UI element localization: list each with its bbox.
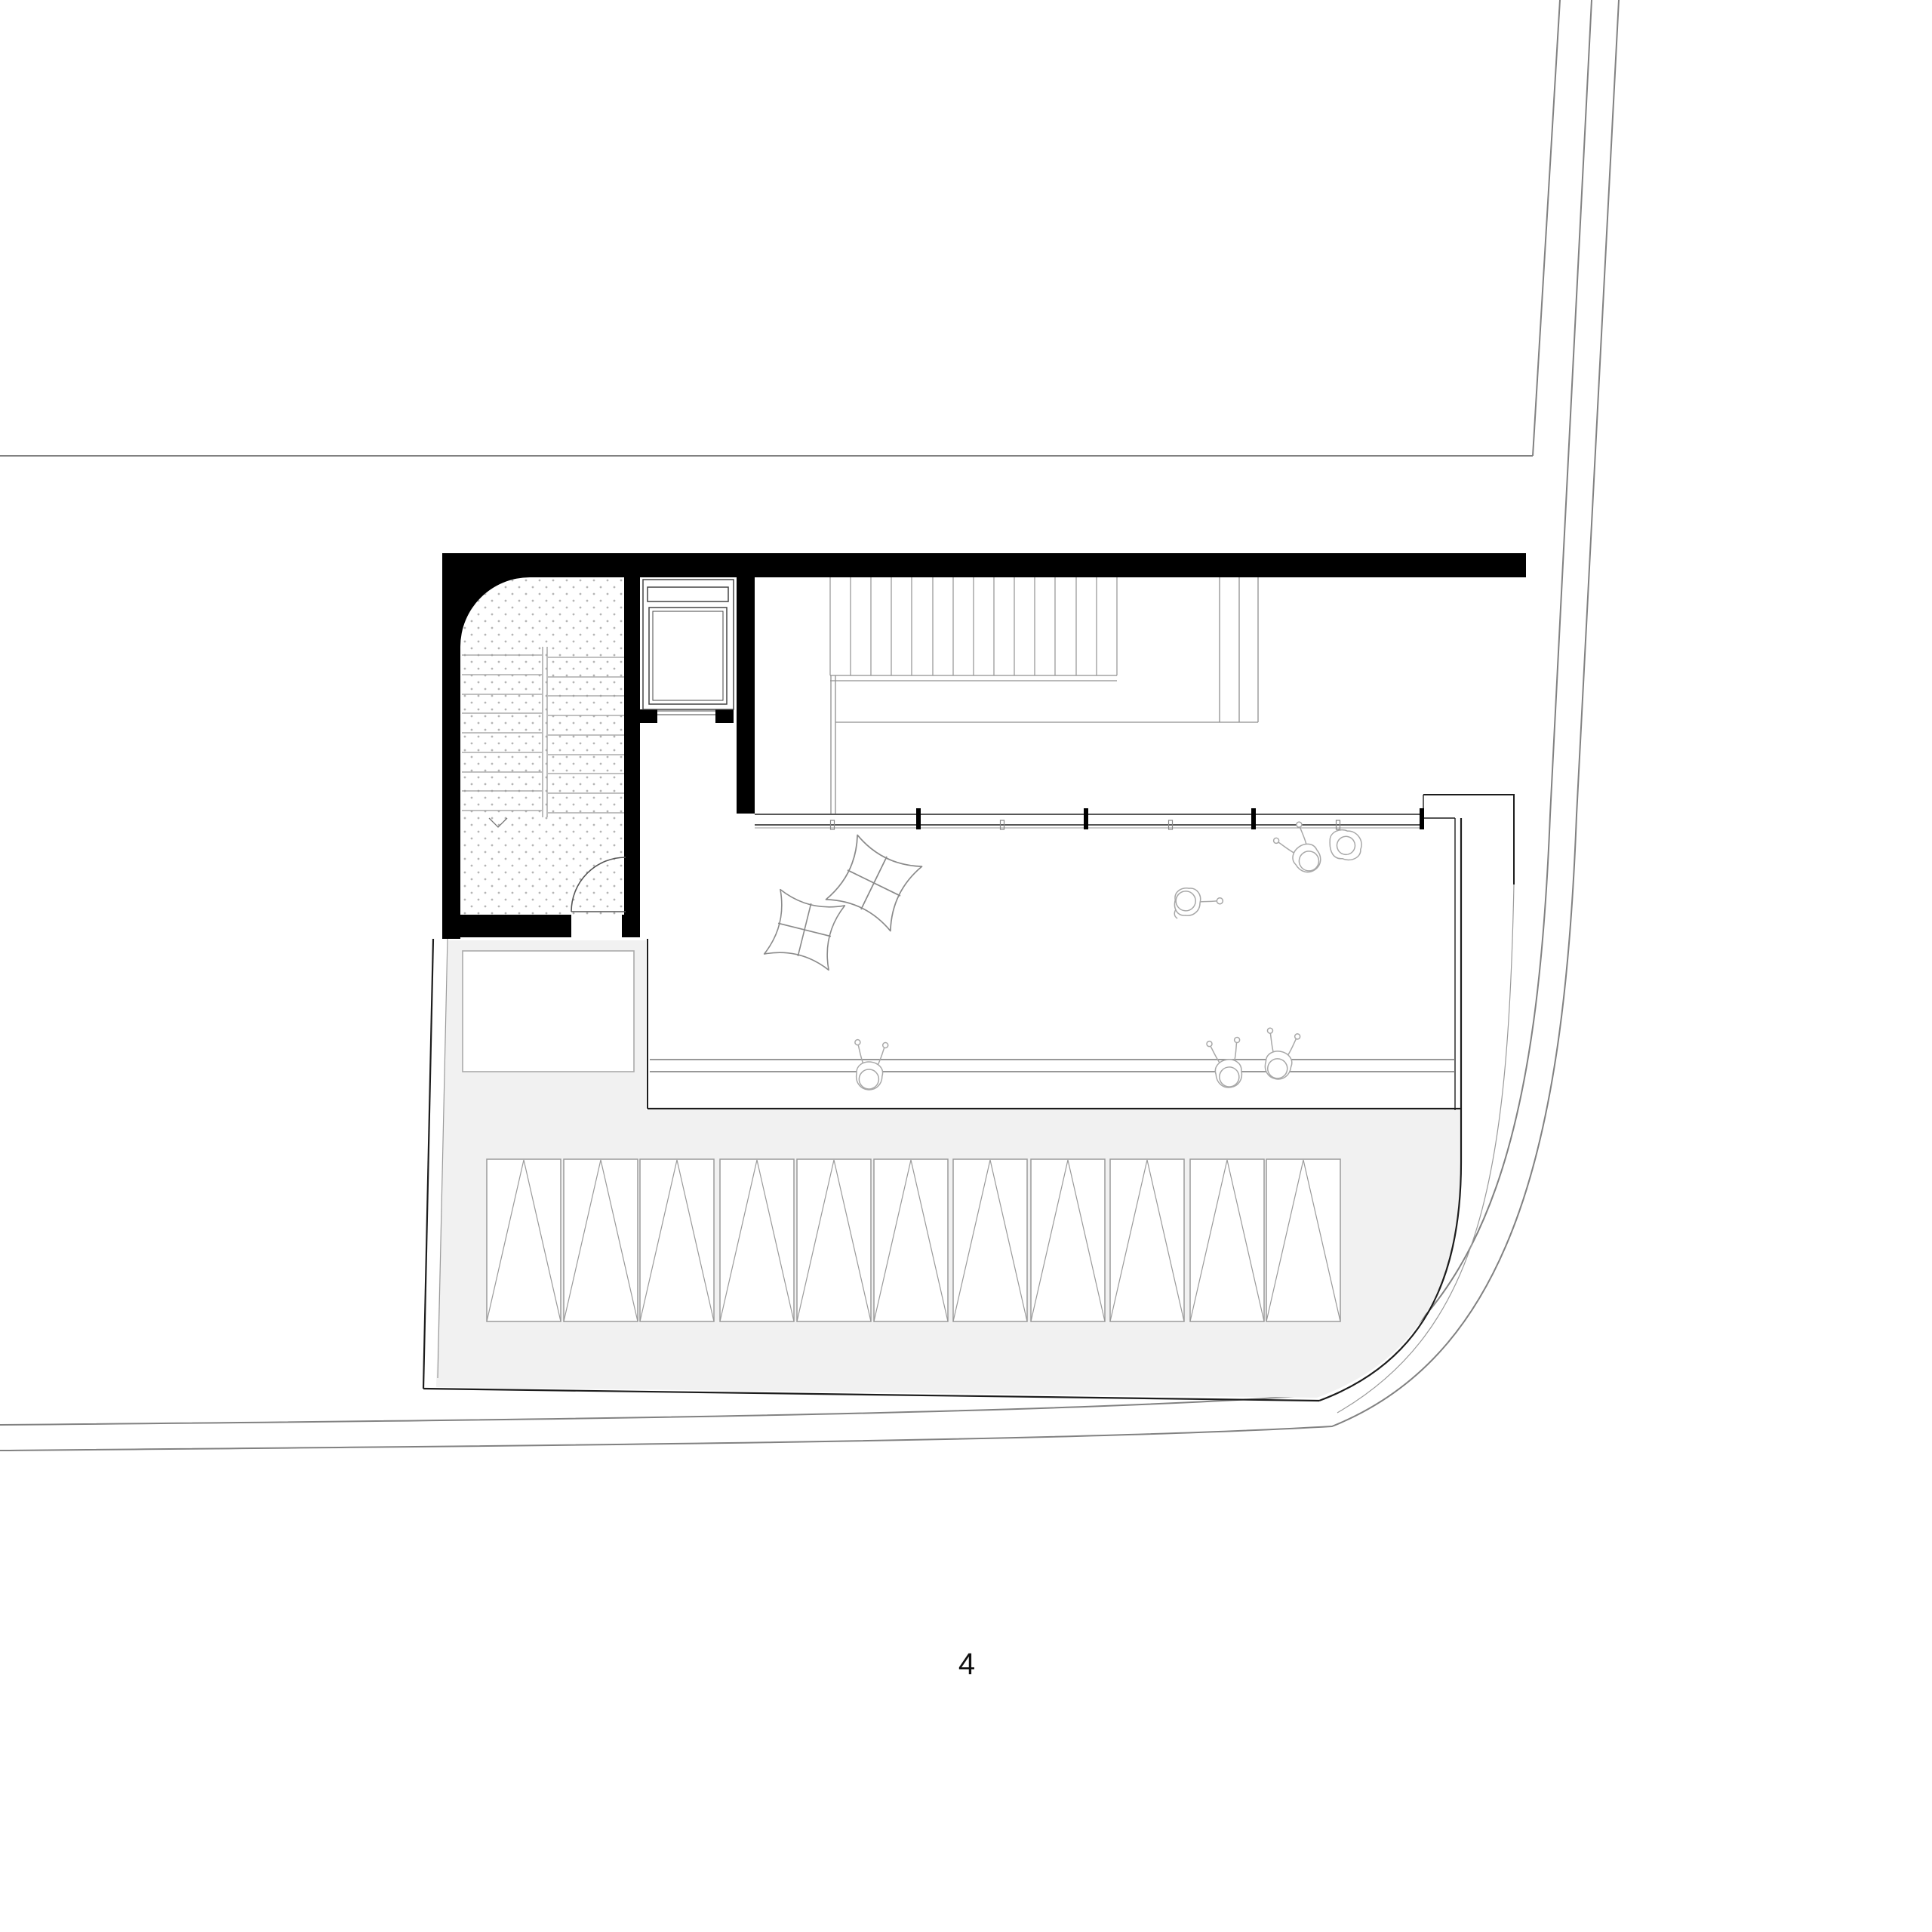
- canopy-bay: [1110, 1159, 1184, 1321]
- planter: [463, 951, 634, 1072]
- wall-left: [442, 553, 460, 939]
- elevator-door: [657, 711, 715, 715]
- canopy-bay: [487, 1159, 561, 1321]
- canopy-bay: [874, 1159, 948, 1321]
- butterfly-chair: [764, 890, 845, 971]
- parcel-corner-line: [1533, 0, 1560, 456]
- wall-bottom: [442, 915, 571, 937]
- upper-stair-edges: [830, 577, 1258, 814]
- canopy-bay: [720, 1159, 794, 1321]
- railing-post: [916, 808, 921, 829]
- wall-stair-room-right: [624, 577, 640, 915]
- wall-top: [442, 553, 1526, 577]
- wall-interior: [737, 577, 755, 814]
- ground-left-edge-outer: [423, 939, 433, 1389]
- floor-number-label: 4: [958, 1647, 975, 1681]
- canopy-bay: [797, 1159, 871, 1321]
- railing-posts: [916, 808, 1424, 829]
- terrace-railing: [755, 808, 1424, 829]
- elevator-jamb-left: [640, 709, 657, 723]
- floor-plan-drawing: 4: [0, 0, 1932, 1932]
- canopy-bay: [564, 1159, 638, 1321]
- elevator-counterweight: [648, 587, 728, 601]
- floor-plan-sheet: 4: [0, 0, 1932, 1932]
- terrace-top-right-notch: [1423, 795, 1514, 884]
- butterfly-chairs: [764, 835, 922, 970]
- stair-left-stringer: [831, 675, 835, 814]
- railing-post: [1084, 808, 1088, 829]
- elevator-cab-inner: [653, 611, 723, 700]
- canopy-bay: [1031, 1159, 1105, 1321]
- canopy-bay: [953, 1159, 1027, 1321]
- railing-post: [1251, 808, 1256, 829]
- canopy-bay: [1190, 1159, 1264, 1321]
- person-figure: [1258, 1028, 1300, 1082]
- person-figure: [1174, 887, 1224, 922]
- canopy-bay: [1266, 1159, 1340, 1321]
- person-figure: [851, 1039, 889, 1091]
- elevator-jamb-right: [715, 709, 734, 723]
- elevator: [643, 580, 734, 715]
- butterfly-chair: [826, 835, 921, 931]
- upper-stair-treads: [830, 577, 1117, 675]
- railing-post: [1420, 808, 1424, 829]
- people-figures: [851, 821, 1365, 1091]
- terrace-bench-edge: [650, 1060, 1455, 1072]
- canopy-bays: [487, 1159, 1340, 1321]
- person-figure: [1207, 1037, 1247, 1090]
- stair-underside-edge: [830, 675, 1117, 681]
- stair-right-shaft: [1220, 577, 1258, 722]
- person-figure: [1326, 826, 1365, 863]
- person-figure: [1272, 821, 1327, 880]
- elevator-cab-outer: [649, 608, 727, 704]
- canopy-bay: [640, 1159, 714, 1321]
- elevator-shaft: [643, 580, 734, 709]
